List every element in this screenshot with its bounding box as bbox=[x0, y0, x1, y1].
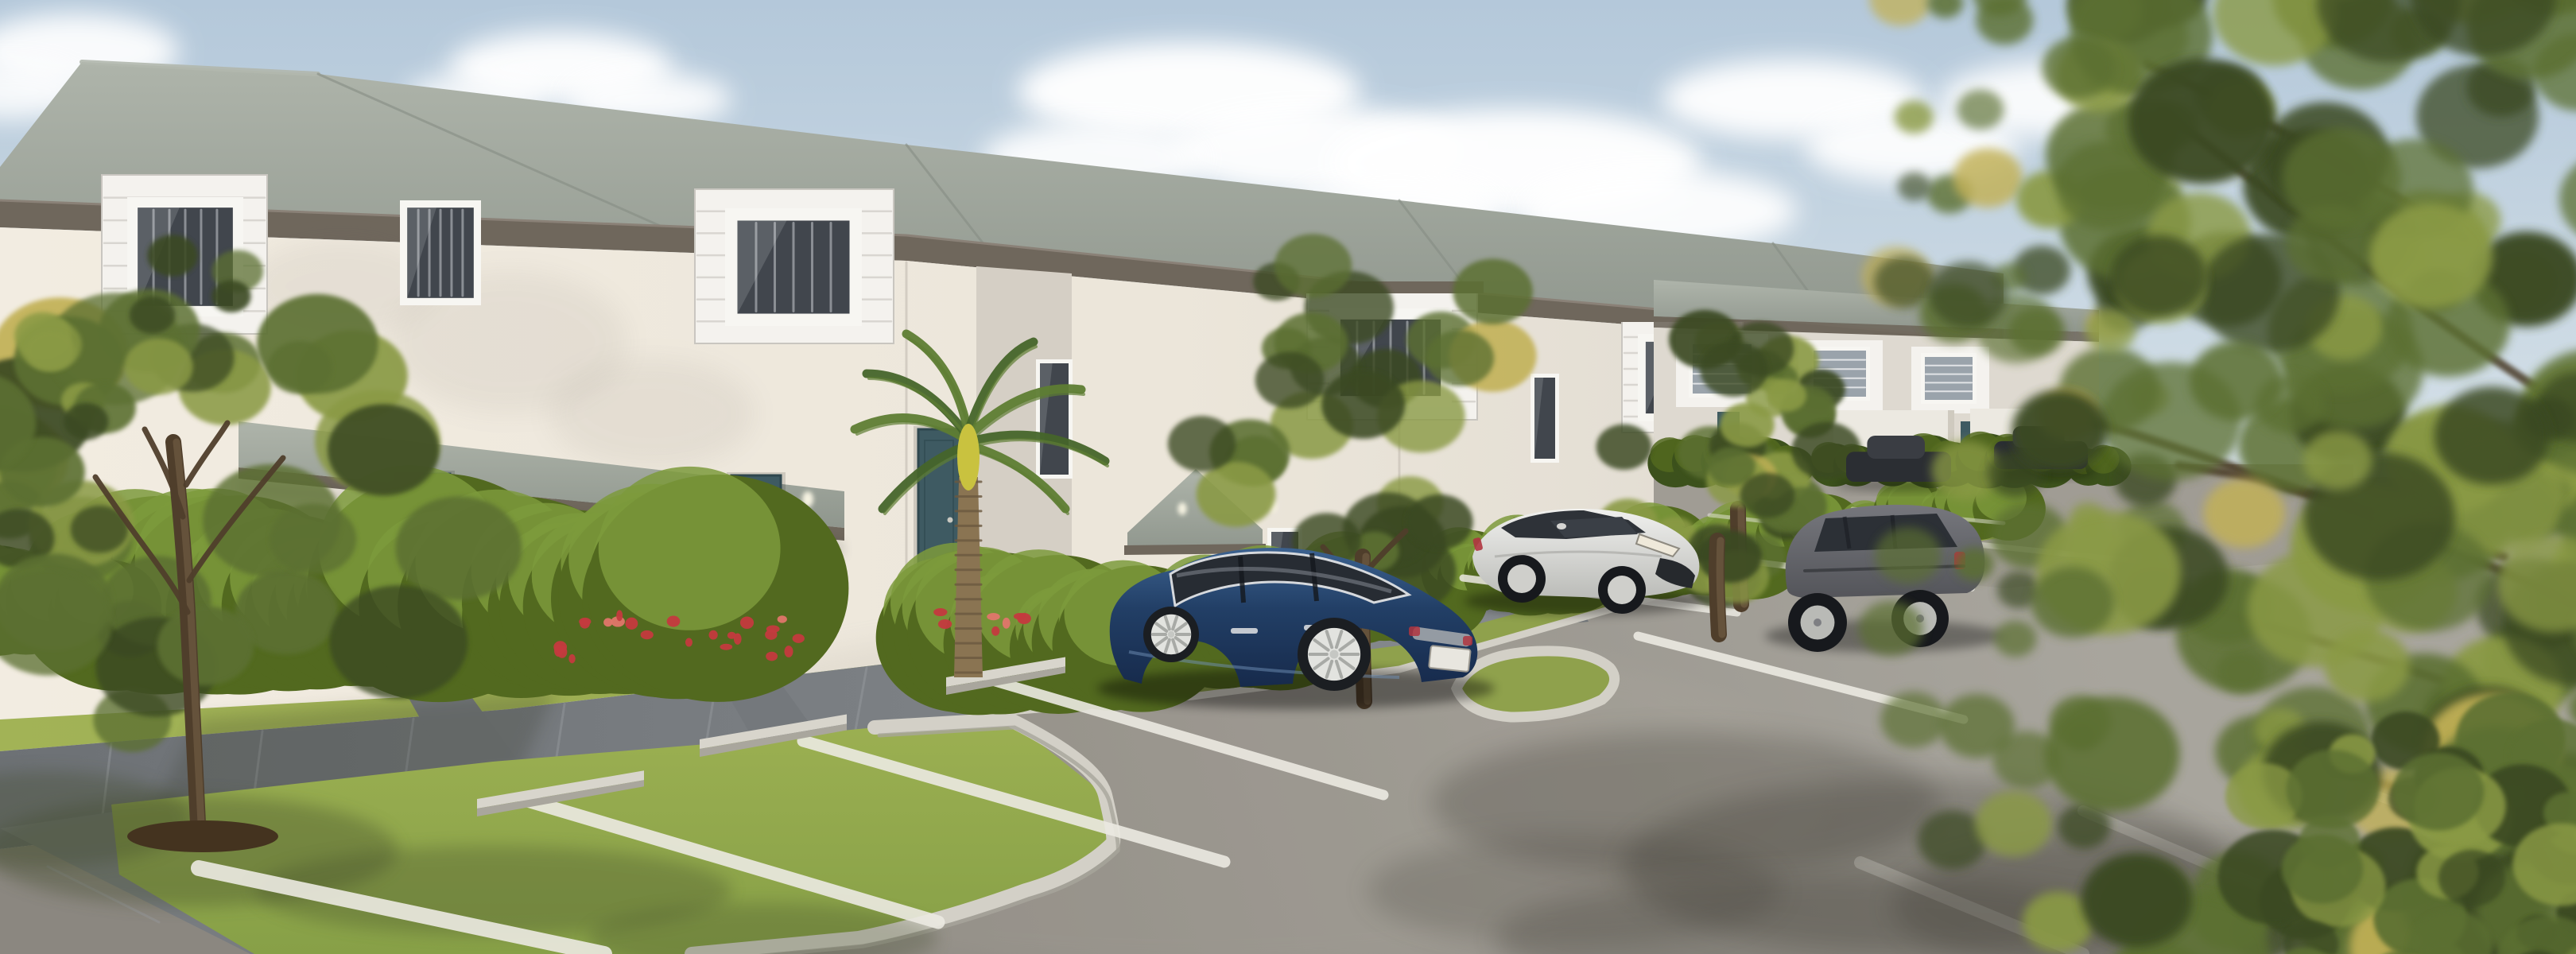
tree-foliage bbox=[157, 606, 254, 685]
tree-foliage-blurred bbox=[2128, 58, 2276, 184]
flower bbox=[740, 617, 754, 629]
flower bbox=[667, 616, 681, 627]
flower bbox=[766, 625, 780, 632]
tree-foliage bbox=[1453, 259, 1532, 324]
car-wheel-hub bbox=[1168, 631, 1174, 638]
flower bbox=[579, 618, 591, 626]
flower bbox=[1003, 618, 1011, 629]
palm-trunk bbox=[954, 477, 983, 677]
tree-foliage-blurred bbox=[1994, 621, 2037, 657]
car-wheel-hub bbox=[1814, 619, 1821, 626]
tree-foliage-blurred bbox=[2392, 753, 2484, 831]
car-taillight bbox=[1409, 626, 1420, 636]
tree-foliage-blurred bbox=[2434, 386, 2550, 484]
tree-foliage bbox=[1197, 462, 1276, 527]
flower bbox=[709, 630, 718, 640]
flower bbox=[991, 626, 999, 636]
tree-foliage-blurred bbox=[2287, 750, 2380, 828]
car-wheel-hub bbox=[1329, 650, 1338, 658]
tree-foliage-blurred bbox=[1898, 173, 1931, 201]
flower bbox=[785, 646, 793, 657]
tree-foliage-blurred bbox=[2085, 310, 2136, 353]
flower bbox=[987, 613, 1000, 620]
flower bbox=[933, 608, 947, 616]
tree-foliage-blurred bbox=[2438, 850, 2505, 907]
tree-foliage-blurred bbox=[1929, 262, 2007, 328]
tree-foliage-blurred bbox=[2303, 431, 2372, 490]
tree-dirt-mound bbox=[127, 820, 278, 852]
car-wheel-rim bbox=[1507, 564, 1536, 593]
flower bbox=[793, 634, 805, 642]
flower bbox=[778, 615, 787, 622]
flower bbox=[938, 619, 952, 629]
tree-foliage bbox=[25, 331, 75, 371]
flower bbox=[720, 644, 732, 650]
tree-foliage-blurred bbox=[2009, 308, 2066, 355]
tree-foliage bbox=[64, 403, 108, 440]
tree-foliage-blurred bbox=[2111, 235, 2206, 316]
tree-foliage bbox=[1596, 425, 1652, 470]
flower bbox=[766, 652, 778, 661]
foreground-tree-shadow bbox=[1368, 835, 1781, 946]
tree-foliage bbox=[124, 339, 192, 395]
palm-crownshaft bbox=[957, 424, 980, 491]
tree-foliage-blurred bbox=[1957, 90, 2004, 130]
tree-foliage-blurred bbox=[2282, 127, 2401, 229]
car-wheel-rim bbox=[1608, 576, 1636, 604]
tree-foliage-blurred bbox=[1859, 601, 1923, 656]
tree-foliage bbox=[270, 503, 356, 574]
flower bbox=[1014, 613, 1026, 620]
tree-foliage bbox=[130, 297, 175, 334]
architectural-rendering bbox=[0, 0, 2576, 954]
tree-foliage bbox=[211, 280, 250, 312]
tree-foliage-blurred bbox=[2045, 696, 2180, 812]
car-door-handle bbox=[1231, 628, 1258, 634]
tree-foliage-blurred bbox=[1895, 101, 1934, 134]
tree-foliage bbox=[1255, 352, 1325, 409]
flower bbox=[727, 632, 736, 639]
tree-foliage-blurred bbox=[2324, 629, 2410, 701]
tree-foliage-blurred bbox=[1955, 548, 1994, 581]
tree-foliage-blurred bbox=[2216, 650, 2266, 692]
tree-foliage-blurred bbox=[2081, 853, 2193, 948]
distant-car-roof bbox=[1867, 436, 1925, 459]
tree-foliage bbox=[1426, 330, 1494, 386]
tree-foliage-blurred bbox=[2042, 37, 2115, 99]
tree-foliage-blurred bbox=[2204, 479, 2285, 548]
tree-foliage bbox=[147, 235, 197, 277]
tree-foliage bbox=[1698, 530, 1762, 583]
tree-foliage bbox=[1321, 370, 1405, 439]
tree-foliage bbox=[1767, 379, 1806, 412]
wall-shadow bbox=[549, 358, 755, 469]
tree-foliage-blurred bbox=[1939, 694, 2015, 758]
flower bbox=[603, 618, 612, 626]
tree-foliage-blurred bbox=[2190, 341, 2283, 421]
flower bbox=[685, 638, 692, 647]
door-handle bbox=[948, 518, 953, 523]
tree-foliage bbox=[329, 585, 467, 699]
tree-foliage bbox=[1406, 494, 1473, 549]
hedge-highlight bbox=[599, 467, 781, 630]
car-mirror bbox=[1557, 523, 1566, 529]
rear-window-glass bbox=[1925, 357, 1973, 400]
car-b-pillar bbox=[1240, 556, 1243, 603]
tree-foliage bbox=[328, 404, 439, 495]
tree-foliage bbox=[1740, 473, 1795, 518]
tree-foliage-blurred bbox=[2282, 834, 2363, 903]
tree-foliage-blurred bbox=[1880, 692, 1946, 747]
car-taillight bbox=[1463, 636, 1472, 646]
tree-foliage-blurred bbox=[2031, 567, 2114, 638]
tree-foliage bbox=[1700, 341, 1768, 397]
tree-foliage-blurred bbox=[2012, 390, 2108, 472]
flower bbox=[625, 618, 638, 630]
tree-foliage-blurred bbox=[1953, 149, 2023, 207]
flower bbox=[616, 610, 623, 621]
tree-foliage bbox=[1274, 234, 1352, 297]
wall-lamp bbox=[1177, 502, 1186, 515]
flower bbox=[641, 630, 654, 639]
car-license-plate bbox=[1429, 646, 1471, 672]
flower bbox=[553, 641, 567, 653]
tree-foliage bbox=[268, 341, 332, 394]
tree-foliage-blurred bbox=[1975, 791, 2052, 856]
tree-foliage-blurred bbox=[1875, 527, 1942, 584]
flower bbox=[568, 654, 575, 664]
scene-canvas bbox=[0, 0, 2576, 954]
tree-foliage bbox=[1168, 416, 1236, 471]
tree-trunk-light bbox=[1720, 541, 1722, 634]
tree-foliage-blurred bbox=[2369, 204, 2493, 308]
tree-foliage bbox=[396, 496, 522, 599]
